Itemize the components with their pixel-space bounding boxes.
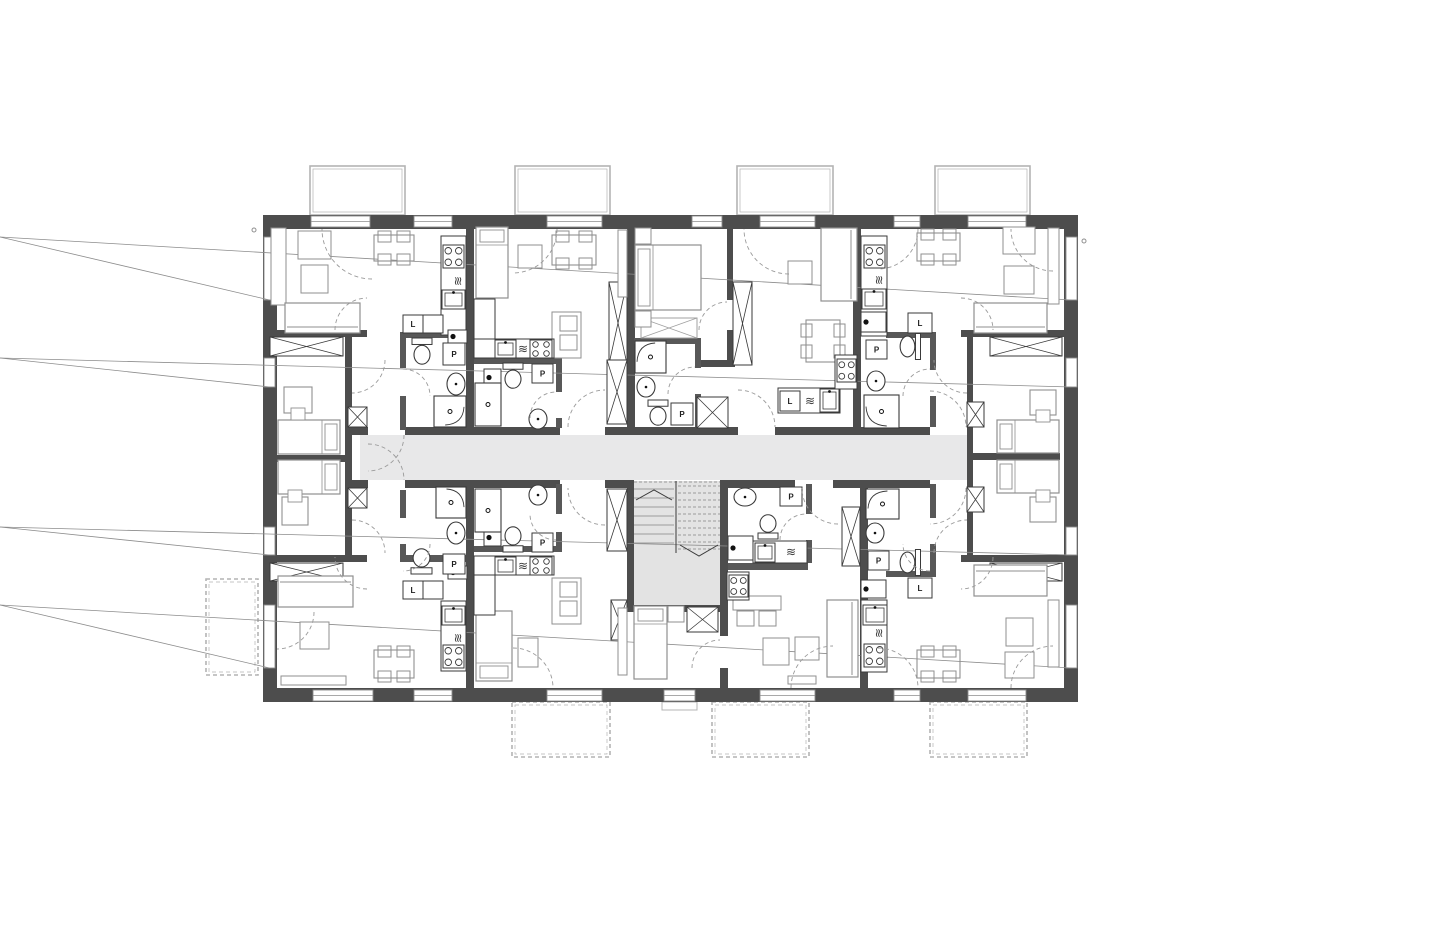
stool	[560, 582, 577, 597]
door-swing	[934, 360, 967, 393]
furniture-rect	[973, 453, 1060, 460]
dishwasher-symbol: ≋	[451, 633, 465, 643]
side-table	[795, 637, 819, 660]
toilet	[648, 400, 668, 425]
washbasin	[455, 532, 458, 535]
furniture-rect	[263, 215, 1078, 229]
sideboard	[1048, 600, 1059, 667]
washer-label: P	[451, 350, 457, 359]
door-swing	[352, 360, 385, 393]
corridor-floor	[360, 435, 967, 480]
furniture-rect	[556, 532, 562, 546]
bookcase	[271, 228, 286, 305]
kitchen-cabinet	[474, 575, 495, 615]
desk	[1036, 490, 1050, 502]
cabinet-with-boiler	[450, 334, 455, 339]
stool	[560, 316, 577, 331]
dishwasher-symbol: ≋	[786, 545, 796, 559]
cabinet	[423, 315, 443, 333]
toilet	[503, 363, 523, 388]
toilet	[900, 334, 920, 360]
window	[0, 527, 270, 555]
door-swing	[738, 390, 775, 427]
coffee-table	[788, 261, 812, 284]
furniture-rect	[400, 490, 406, 518]
dishwasher-symbol: ≋	[872, 275, 886, 285]
furniture-rect	[720, 612, 728, 636]
furniture-rect	[930, 544, 936, 571]
window	[0, 237, 270, 300]
furniture-rect	[400, 544, 406, 555]
furniture-rect	[695, 344, 701, 368]
armchair	[1003, 227, 1035, 254]
window-sill	[662, 702, 697, 710]
washer-label: P	[540, 370, 546, 379]
fridge-label: L	[788, 397, 793, 406]
washbasin	[455, 383, 458, 386]
door-swing	[692, 640, 720, 668]
nightstand	[668, 606, 684, 622]
cabinet-with-boiler	[486, 375, 491, 380]
furniture-rect	[720, 668, 728, 688]
furniture-rect	[930, 484, 936, 518]
washbasin	[645, 386, 648, 389]
sideboard	[618, 230, 627, 297]
furniture-rect	[967, 330, 973, 562]
washer-label: P	[679, 410, 685, 419]
washbasin	[537, 494, 540, 497]
door-swing	[934, 520, 967, 553]
floor-plan-page: ≋LP≋PL≋P≋LP≋LP≋PP≋≋LP	[0, 0, 1429, 940]
window	[0, 358, 270, 387]
floor-plan-svg: ≋LP≋PL≋P≋LP≋LP≋PP≋≋LP	[0, 0, 1429, 940]
furniture-rect	[352, 480, 368, 488]
furniture-rect	[466, 488, 474, 688]
armchair	[298, 231, 331, 259]
kitchen-sink	[452, 291, 455, 294]
kitchen-sink	[452, 607, 455, 610]
kitchen-sink	[873, 290, 876, 293]
washer-label: P	[876, 557, 882, 566]
cabinet-with-boiler	[863, 586, 868, 591]
furniture-rect	[400, 396, 406, 430]
survey-mark	[252, 228, 256, 232]
furniture-rect	[263, 555, 367, 562]
survey-mark	[1082, 239, 1086, 243]
washer-label: P	[788, 493, 794, 502]
door-swing	[744, 229, 789, 274]
furniture-rect	[775, 427, 930, 435]
side-table	[518, 245, 542, 268]
dishwasher-symbol: ≋	[805, 394, 815, 408]
fridge-label: L	[411, 320, 416, 329]
stool	[560, 601, 577, 616]
washbasin	[537, 418, 540, 421]
washer-label: P	[540, 539, 546, 548]
door-swing	[568, 488, 605, 525]
furniture-rect	[352, 427, 368, 435]
sideboard	[1048, 228, 1059, 304]
sideboard	[618, 608, 627, 675]
fridge-label: L	[918, 319, 923, 328]
furniture-rect	[833, 480, 930, 488]
door-swing	[568, 390, 605, 427]
furniture-rect	[627, 229, 635, 427]
stool	[560, 335, 577, 350]
furniture-rect	[400, 338, 406, 368]
cabinet-with-boiler	[863, 319, 868, 324]
armchair	[763, 638, 789, 665]
stool	[759, 611, 776, 626]
cabinet	[423, 581, 443, 599]
stool	[737, 611, 754, 626]
sideboard	[281, 676, 346, 685]
furniture-rect	[727, 229, 733, 300]
furniture-rect	[961, 555, 1078, 562]
door-swing	[699, 302, 727, 330]
furniture-rect	[930, 338, 936, 370]
armchair	[1006, 618, 1033, 646]
toilet	[503, 527, 523, 552]
armchair	[1004, 266, 1034, 294]
fridge-label: L	[411, 586, 416, 595]
coffee-table	[301, 265, 328, 293]
furniture-rect	[556, 484, 562, 514]
kitchen-sink	[504, 558, 507, 561]
kitchen-cabinet	[474, 299, 495, 339]
furniture-rect	[556, 364, 562, 392]
cabinet-with-boiler	[730, 545, 735, 550]
nightstand	[635, 311, 651, 327]
cabinet-with-boiler	[486, 535, 491, 540]
desk	[1036, 410, 1050, 422]
nightstand	[635, 228, 651, 244]
side-table	[518, 638, 538, 667]
washbasin	[744, 496, 747, 499]
dishwasher-symbol: ≋	[451, 276, 465, 286]
door-swing	[403, 369, 430, 396]
furniture-rect	[556, 418, 562, 428]
furniture-rect	[627, 480, 634, 612]
kitchen-sink	[764, 544, 767, 547]
furniture-rect	[930, 396, 936, 427]
toilet	[758, 515, 778, 539]
furniture-rect	[345, 330, 352, 562]
dishwasher-symbol: ≋	[518, 559, 528, 573]
washbasin	[874, 532, 877, 535]
dishwasher-symbol: ≋	[872, 628, 886, 638]
kitchen-sink	[874, 606, 877, 609]
door-swing	[668, 367, 695, 394]
toilet	[412, 338, 432, 364]
desk	[288, 490, 302, 502]
kitchen-sink	[828, 390, 831, 393]
dishwasher-symbol: ≋	[518, 342, 528, 356]
door-swing	[780, 514, 806, 540]
washer-label: P	[874, 346, 880, 355]
armchair	[1005, 652, 1034, 678]
furniture-rect	[806, 484, 812, 514]
coffee-table	[300, 622, 329, 649]
fridge-label: L	[918, 584, 923, 593]
furniture-rect	[728, 563, 808, 570]
furniture-rect	[466, 229, 474, 427]
washbasin	[875, 380, 878, 383]
kitchen-sink	[504, 341, 507, 344]
washer-label: P	[451, 560, 457, 569]
desk	[291, 408, 305, 420]
